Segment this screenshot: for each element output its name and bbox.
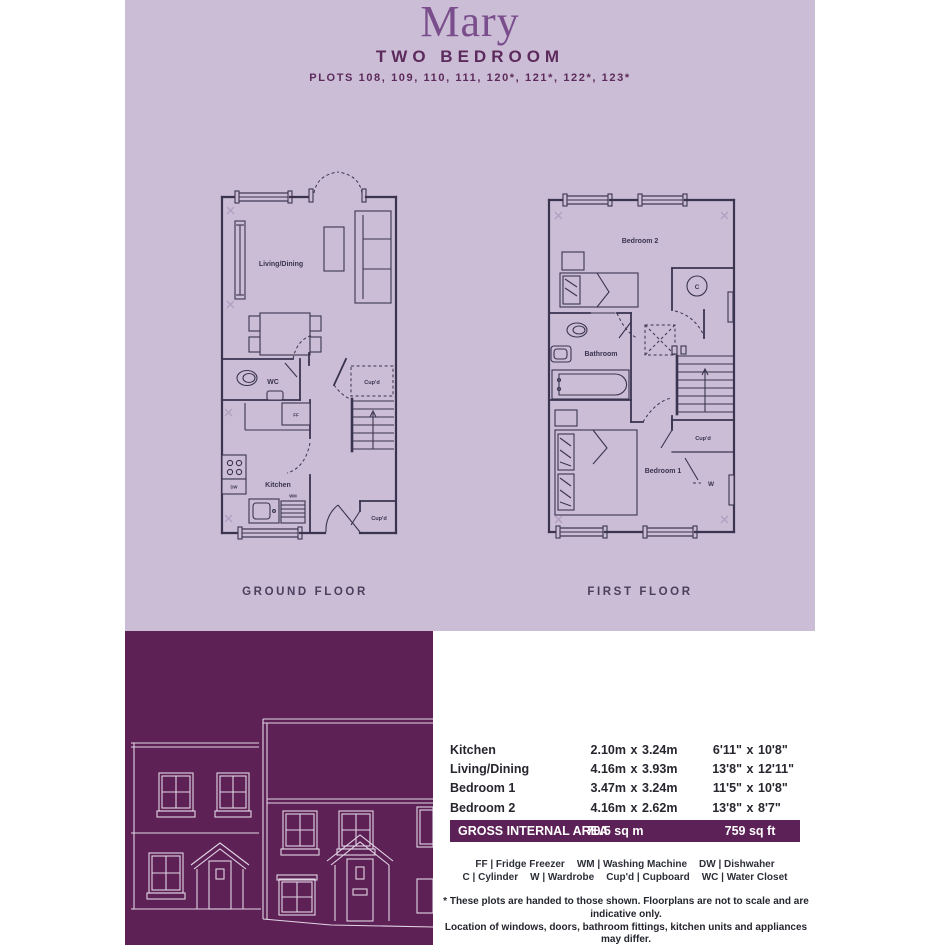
ff-label: FF [293,413,299,418]
hob [222,455,246,479]
imperial-depth: 12'11" [758,762,800,776]
wc-room [222,359,300,400]
bedroom1-label: Bedroom 1 [645,468,682,475]
room-name: Living/Dining [450,762,584,776]
dim-separator: x [742,762,758,776]
cupd-first-label: Cup'd [695,436,711,442]
right-house-porch [327,835,393,921]
legend-item: WM | Washing Machine [577,859,687,870]
radiator [235,221,245,299]
house-elevation-illustration [131,703,433,943]
bedroom2-label: Bedroom 2 [622,238,659,245]
gia-imperial: 759 sq ft [705,820,795,842]
dim-separator: x [742,781,758,795]
imperial-depth: 8'7" [758,801,800,815]
metric-depth: 2.62m [642,801,688,815]
metric-depth: 3.24m [642,781,688,795]
staircase [334,359,394,451]
washing-machine-unit [281,501,305,523]
legend-item: DW | Dishwaher [699,859,775,870]
french-door-swing [314,172,338,193]
disclaimer-line: * These plots are handed to those shown.… [437,896,815,922]
left-house-lower-window [147,853,185,899]
gross-internal-area-band: GROSS INTERNAL AREA 70.5 sq m 759 sq ft [450,820,800,842]
bathroom-door [619,322,631,338]
dw-label: DW [231,485,238,490]
ground-floor-caption: GROUND FLOOR [205,586,405,598]
room-name: Kitchen [450,743,584,757]
table-row: Kitchen 2.10m x 3.24m 6'11" x 10'8" [450,740,800,759]
table-row: Bedroom 2 4.16m x 2.62m 13'8" x 8'7" [450,798,800,817]
page-title: Mary [125,0,815,47]
legend-line-2: C | CylinderW | WardrobeCup'd | Cupboard… [440,871,810,884]
bathtub [552,370,629,399]
living-dining-label: Living/Dining [259,261,303,268]
single-bed [560,273,638,307]
imperial-width: 6'11" [704,743,742,757]
dim-separator: x [626,781,642,795]
imperial-width: 13'8" [704,801,742,815]
cupboard-door [334,359,346,385]
kitchen-label: Kitchen [265,482,291,489]
bathroom-label: Bathroom [584,351,617,358]
cupd-hall-label: Cup'd [371,516,387,522]
disclaimer-line: Location of windows, doors, bathroom fit… [437,922,815,945]
wardrobe-label: W [708,481,715,488]
legend-item: Cup'd | Cupboard [606,872,690,883]
abbreviation-legend: FF | Fridge FreezerWM | Washing MachineD… [440,858,810,884]
gia-metric: 70.5 sq m [570,820,660,842]
metric-width: 4.16m [584,801,626,815]
left-house-porch [191,843,249,909]
metric-width: 3.47m [584,781,626,795]
staircase-first [672,346,734,414]
imperial-width: 11'5" [704,781,742,795]
bedroom1-furniture [555,410,637,515]
metric-width: 4.16m [584,762,626,776]
wc-label: WC [267,379,279,386]
metric-width: 2.10m [584,743,626,757]
legend-line-1: FF | Fridge FreezerWM | Washing MachineD… [440,858,810,871]
bedroom1-door [631,398,672,428]
wc-basin [267,391,283,400]
legend-item: W | Wardrobe [530,872,594,883]
room-name: Bedroom 1 [450,781,584,795]
table-row: Living/Dining 4.16m x 3.93m 13'8" x 12'1… [450,759,800,778]
page-subtitle: TWO BEDROOM [125,47,815,67]
landing-radiator [728,292,733,322]
legend-item: WC | Water Closet [702,872,788,883]
first-floor-plan: Bedroom 2 C [535,180,745,550]
ground-floor-plan: Living/Dining WC [205,163,405,548]
loft-hatch [645,325,675,355]
toilet [567,323,587,337]
wc-door [285,363,297,377]
bedside-table [562,252,584,270]
sink-unit [249,499,279,523]
bathroom-basin [551,346,571,362]
kitchen-room [222,400,310,533]
cylinder-label: C [695,284,700,291]
imperial-depth: 10'8" [758,781,800,795]
dim-separator: x [742,801,758,815]
legend-item: C | Cylinder [463,872,519,883]
cylinder-cupboard [672,268,734,338]
dim-separator: x [626,743,642,757]
disclaimer: * These plots are handed to those shown.… [437,896,815,945]
room-name: Bedroom 2 [450,801,584,815]
elevation-panel [125,631,433,945]
metric-depth: 3.93m [642,762,688,776]
table-row: Bedroom 1 3.47m x 3.24m 11'5" x 10'8" [450,779,800,798]
cupd-stairs-label: Cup'd [364,380,380,386]
dim-separator: x [742,743,758,757]
bedside-table-2 [555,410,577,426]
bedroom2-furniture [560,252,638,307]
dining-table [249,313,321,355]
imperial-depth: 10'8" [758,743,800,757]
wm-label: WM [289,494,297,499]
dim-separator: x [626,762,642,776]
imperial-width: 13'8" [704,762,742,776]
coffee-table [324,227,344,271]
right-house-upper-windows [281,807,433,855]
dim-separator: x [626,801,642,815]
metric-depth: 3.24m [642,743,688,757]
double-bed [555,430,637,515]
plot-numbers: PLOTS 108, 109, 110, 111, 120*, 121*, 12… [125,72,815,84]
sofa [355,211,391,303]
brochure-page: Mary TWO BEDROOM PLOTS 108, 109, 110, 11… [0,0,945,945]
bedroom2-wall [549,313,637,338]
first-floor-caption: FIRST FLOOR [535,586,745,598]
left-house-upper-windows [157,773,251,817]
legend-item: FF | Fridge Freezer [475,859,564,870]
dimensions-table: Kitchen 2.10m x 3.24m 6'11" x 10'8" Livi… [450,740,800,842]
